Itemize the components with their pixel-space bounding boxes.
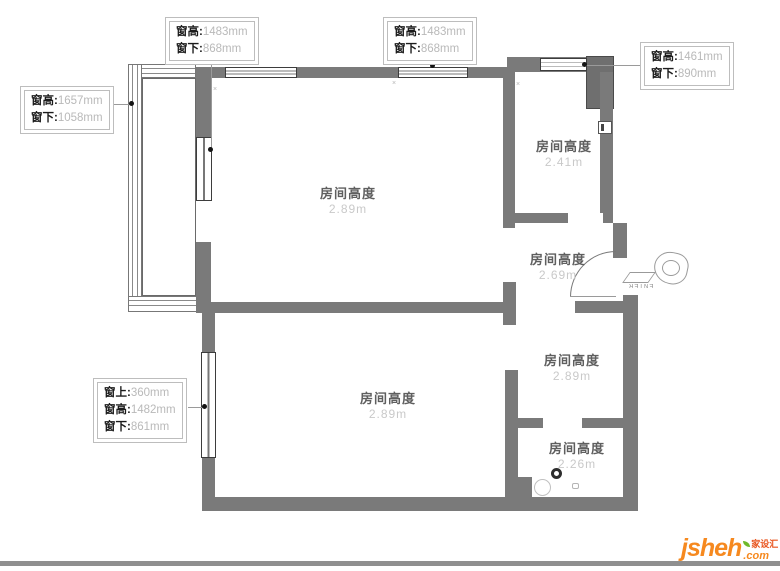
- compass-scribble-icon: [662, 260, 680, 276]
- callout-row: 窗高:1461mm: [651, 49, 723, 66]
- logo-chinese-name: 家设汇: [743, 537, 778, 550]
- room-label-right-room: 房间高度 2.89m: [517, 350, 627, 383]
- room-height-label: 房间高度: [509, 136, 619, 155]
- callout-window-bottom-left: 窗上:360mm 窗高:1482mm 窗下:861mm: [93, 378, 187, 443]
- logo-suffix-block: 家设汇 .com: [743, 537, 778, 562]
- window-top-1: [225, 67, 297, 78]
- callout-value: 1058mm: [58, 112, 103, 124]
- logo-chinese-text: 家设汇: [751, 537, 778, 550]
- logo-wordmark: jsheh: [681, 536, 741, 561]
- leader-line: [211, 62, 212, 150]
- callout-label: 窗高:: [651, 51, 678, 63]
- wall-segment: [196, 302, 516, 313]
- room-height-value: 2.89m: [333, 407, 443, 421]
- callout-window-top-middle: 窗高:1483mm 窗下:868mm: [383, 17, 477, 65]
- room-height-value: 2.89m: [293, 202, 403, 216]
- callout-row: 窗下:890mm: [651, 66, 723, 83]
- callout-label: 窗下:: [176, 43, 203, 55]
- callout-row: 窗上:360mm: [104, 385, 176, 402]
- callout-label: 窗下:: [651, 68, 678, 80]
- logo-tld: .com: [743, 550, 778, 562]
- room-height-label: 房间高度: [503, 249, 613, 268]
- wall-segment: [505, 418, 543, 428]
- room-height-value: 2.89m: [517, 369, 627, 383]
- callout-label: 窗高:: [176, 26, 203, 38]
- callout-row: 窗下:868mm: [394, 41, 466, 58]
- wall-segment: [623, 295, 638, 510]
- leader-line: [586, 65, 640, 66]
- room-height-value: 2.41m: [509, 155, 619, 169]
- wall-segment: [603, 208, 613, 223]
- callout-row: 窗高:1657mm: [31, 93, 103, 110]
- callout-label: 窗高:: [31, 95, 58, 107]
- balcony-window-bottom: [128, 296, 198, 312]
- room-height-label: 房间高度: [522, 438, 632, 457]
- x-mark: ×: [213, 86, 217, 93]
- enter-label: ENTER: [628, 282, 653, 288]
- room-height-value: 2.69m: [503, 268, 613, 282]
- callout-row: 窗下:861mm: [104, 419, 176, 436]
- callout-value: 1657mm: [58, 95, 103, 107]
- floor-drain-icon: [534, 479, 551, 496]
- callout-value: 868mm: [203, 43, 241, 55]
- callout-row: 窗高:1483mm: [394, 24, 466, 41]
- callout-row: 窗高:1483mm: [176, 24, 248, 41]
- callout-window-top-right: 窗高:1461mm 窗下:890mm: [640, 42, 734, 90]
- callout-value: 360mm: [131, 387, 169, 399]
- room-label-living: 房间高度 2.89m: [293, 183, 403, 216]
- callout-window-left: 窗高:1657mm 窗下:1058mm: [20, 86, 114, 134]
- callout-value: 890mm: [678, 68, 716, 80]
- callout-label: 窗下:: [31, 112, 58, 124]
- callout-value: 868mm: [421, 43, 459, 55]
- leader-dot: [129, 101, 134, 106]
- callout-window-top-left: 窗高:1483mm 窗下:868mm: [165, 17, 259, 65]
- appliance-icon-detail: [601, 124, 604, 131]
- room-label-bedroom: 房间高度 2.89m: [333, 388, 443, 421]
- room-height-label: 房间高度: [293, 183, 403, 202]
- balcony-inner-line: [142, 78, 196, 296]
- room-label-bathroom: 房间高度 2.26m: [522, 438, 632, 471]
- room-height-value: 2.26m: [522, 457, 632, 471]
- callout-label: 窗高:: [394, 26, 421, 38]
- wall-segment: [202, 313, 215, 352]
- leader-dot: [202, 404, 207, 409]
- entry-marker-icon: ENTER: [626, 250, 692, 298]
- bottom-divider-bar: [0, 561, 780, 566]
- wall-segment: [515, 213, 568, 223]
- callout-row: 窗下:1058mm: [31, 110, 103, 127]
- leaf-icon: [743, 541, 750, 547]
- callout-row: 窗高:1482mm: [104, 402, 176, 419]
- small-fixture-icon: [572, 483, 579, 489]
- callout-label: 窗上:: [104, 387, 131, 399]
- callout-row: 窗下:868mm: [176, 41, 248, 58]
- callout-value: 1483mm: [421, 26, 466, 38]
- callout-value: 1483mm: [203, 26, 248, 38]
- callout-value: 1461mm: [678, 51, 723, 63]
- appliance-icon: [598, 121, 612, 134]
- leader-dot: [582, 62, 587, 67]
- callout-label: 窗下:: [394, 43, 421, 55]
- callout-label: 窗高:: [104, 404, 131, 416]
- window-top-right: [540, 58, 587, 71]
- wall-segment: [196, 242, 211, 303]
- wall-segment: [196, 67, 211, 137]
- wall-segment: [517, 477, 532, 497]
- entry-door-leaf: [570, 296, 616, 297]
- wall-segment: [582, 418, 623, 428]
- room-label-hallway: 房间高度 2.69m: [503, 249, 613, 282]
- room-height-label: 房间高度: [333, 388, 443, 407]
- leader-dot: [208, 147, 213, 152]
- callout-value: 1482mm: [131, 404, 176, 416]
- room-label-kitchen: 房间高度 2.41m: [509, 136, 619, 169]
- wall-segment: [202, 497, 638, 511]
- x-mark: ×: [516, 81, 520, 88]
- callout-value: 861mm: [131, 421, 169, 433]
- x-mark: ×: [392, 80, 396, 87]
- floorplan-canvas: ENTER × × × 窗高:1483mm 窗下:868mm 窗高:1483mm…: [0, 0, 780, 571]
- jsheh-logo: jsheh 家设汇 .com: [681, 536, 778, 562]
- window-top-2: [398, 67, 468, 78]
- callout-label: 窗下:: [104, 421, 131, 433]
- room-height-label: 房间高度: [517, 350, 627, 369]
